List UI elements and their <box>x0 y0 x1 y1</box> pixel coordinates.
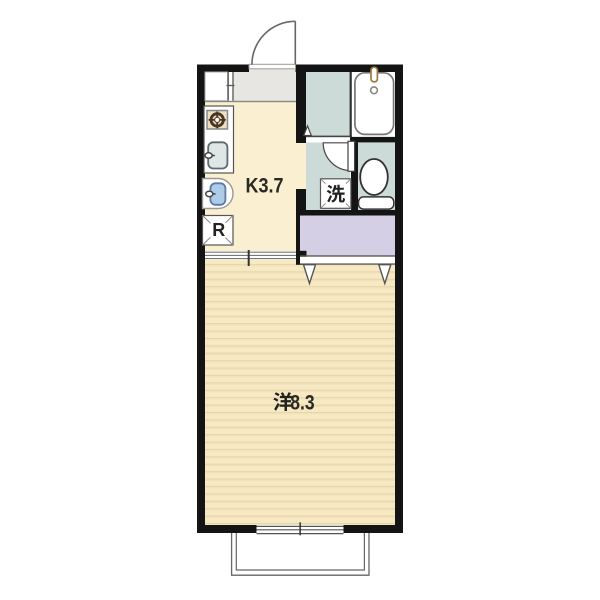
svg-text:8.3: 8.3 <box>290 392 314 415</box>
svg-text:R: R <box>212 220 225 240</box>
svg-text:K3.7: K3.7 <box>246 173 284 197</box>
